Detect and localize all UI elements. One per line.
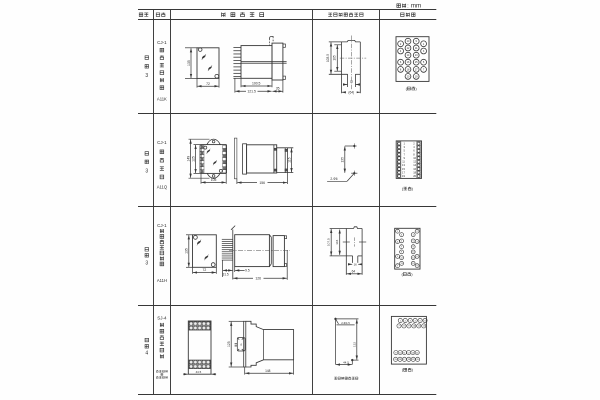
svg-text:149: 149 bbox=[186, 156, 190, 162]
svg-text:2-Φ4.5: 2-Φ4.5 bbox=[341, 321, 350, 325]
svg-text:156: 156 bbox=[259, 181, 265, 185]
svg-text:A11K: A11K bbox=[157, 97, 167, 102]
svg-text:64: 64 bbox=[352, 269, 356, 273]
svg-text:CJ-1: CJ-1 bbox=[157, 40, 167, 45]
svg-text:148: 148 bbox=[265, 369, 271, 373]
svg-text:mm: mm bbox=[411, 3, 421, 10]
svg-text::: : bbox=[407, 3, 408, 9]
svg-text:105: 105 bbox=[333, 55, 337, 61]
svg-text:100.5: 100.5 bbox=[252, 82, 261, 86]
svg-text:135: 135 bbox=[341, 157, 345, 163]
svg-text:44.5: 44.5 bbox=[343, 360, 349, 364]
svg-text:2-Φ6: 2-Φ6 bbox=[330, 177, 337, 181]
svg-text:72: 72 bbox=[203, 268, 207, 272]
svg-text:125: 125 bbox=[191, 156, 195, 162]
svg-text:132: 132 bbox=[353, 342, 357, 347]
svg-text:104: 104 bbox=[335, 239, 339, 244]
svg-text:135: 135 bbox=[187, 60, 191, 66]
svg-text:CJ-1: CJ-1 bbox=[157, 223, 167, 228]
svg-text:(64): (64) bbox=[348, 91, 354, 95]
svg-text:3: 3 bbox=[145, 260, 148, 266]
svg-text:4: 4 bbox=[145, 350, 148, 356]
svg-text:126: 126 bbox=[255, 277, 261, 281]
svg-text:SJ-4: SJ-4 bbox=[157, 316, 167, 321]
svg-text:3: 3 bbox=[145, 73, 148, 79]
svg-text:31.5: 31.5 bbox=[222, 272, 228, 276]
svg-text:16: 16 bbox=[350, 79, 354, 83]
svg-text:A11H: A11H bbox=[157, 278, 167, 283]
svg-text:9.5: 9.5 bbox=[245, 269, 250, 273]
svg-text:44.5: 44.5 bbox=[196, 370, 202, 374]
svg-text:107.5: 107.5 bbox=[326, 238, 330, 246]
svg-text:115: 115 bbox=[287, 157, 291, 163]
svg-text:103.5: 103.5 bbox=[326, 54, 330, 62]
svg-text:125: 125 bbox=[227, 341, 231, 347]
svg-text:CJ-1: CJ-1 bbox=[157, 140, 167, 145]
svg-text:35: 35 bbox=[276, 86, 280, 90]
svg-text:105: 105 bbox=[211, 178, 217, 182]
svg-text:3: 3 bbox=[145, 168, 148, 174]
svg-text:135: 135 bbox=[185, 248, 189, 254]
svg-text:16: 16 bbox=[354, 263, 358, 267]
svg-text:121.5: 121.5 bbox=[247, 90, 256, 94]
svg-text:A11Q: A11Q bbox=[157, 185, 168, 190]
svg-text:72: 72 bbox=[206, 82, 210, 86]
